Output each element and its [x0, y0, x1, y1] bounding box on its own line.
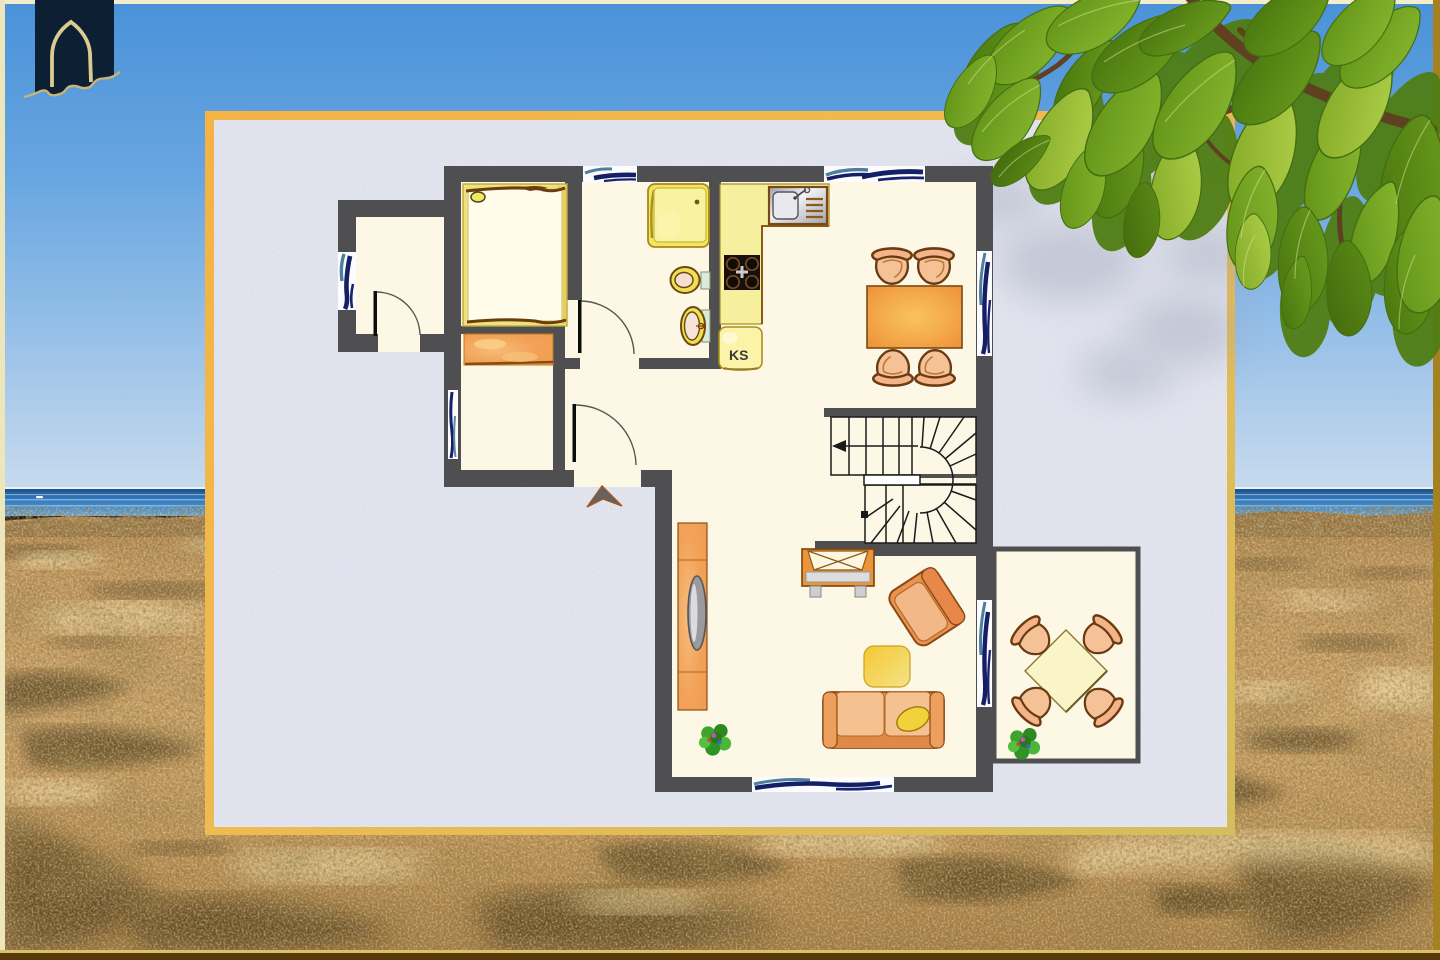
- svg-text:KS: KS: [729, 347, 748, 363]
